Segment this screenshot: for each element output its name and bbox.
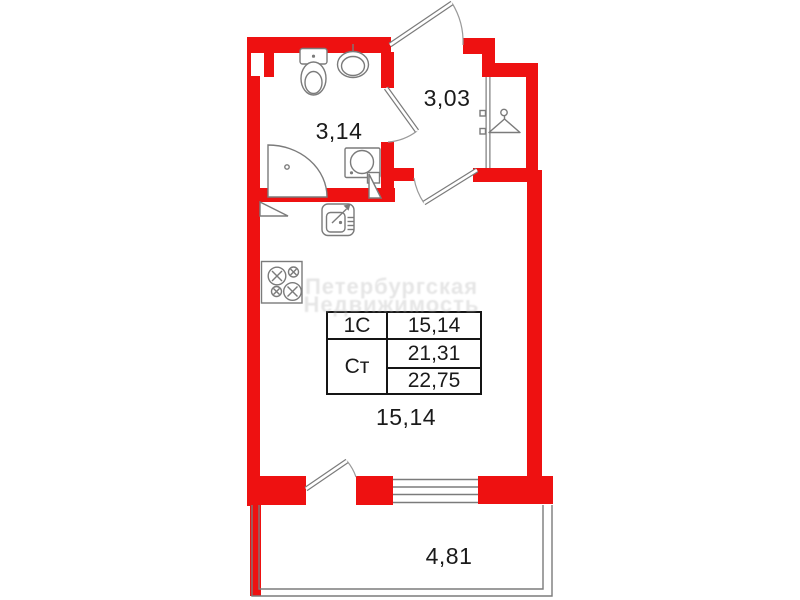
apartment-type-st-cell: Ст xyxy=(327,339,387,394)
living-room-door xyxy=(414,170,477,203)
wardrobe-knob-top xyxy=(480,111,486,117)
area-total-value-cell: 22,75 xyxy=(387,368,481,394)
apartment-type-1c-cell: 1С xyxy=(327,312,387,339)
wardrobe xyxy=(480,77,520,168)
entrance-door xyxy=(390,3,463,45)
area-table: 1С 15,14 Ст 21,31 22,75 xyxy=(326,311,482,395)
hallway-area-label: 3,03 xyxy=(415,85,479,112)
wall-bathroom-right-top xyxy=(381,52,394,88)
bathroom-area-label: 3,14 xyxy=(307,118,371,145)
wall-niche-cutout xyxy=(251,53,264,76)
toilet-icon xyxy=(300,49,327,96)
wall-left xyxy=(247,37,260,506)
balcony-outline xyxy=(252,505,552,596)
wall-niche-pier xyxy=(264,37,274,77)
floorplan-drawing xyxy=(0,0,800,600)
table-row: 1С 15,14 xyxy=(327,312,481,339)
hanger-icon xyxy=(489,109,520,132)
wall-hall-bottom-right xyxy=(473,168,538,182)
wall-window-right-block xyxy=(478,476,553,504)
stove-icon xyxy=(262,262,303,304)
balcony-inner-line xyxy=(259,505,543,589)
balcony-outer-line xyxy=(252,505,552,596)
area-living-value-cell: 21,31 xyxy=(387,339,481,368)
balcony-area-label: 4,81 xyxy=(417,543,481,570)
floorplan-canvas: 3,14 3,03 15,14 4,81 Петербургская Недви… xyxy=(0,0,800,600)
wall-right-lower xyxy=(527,170,542,476)
wardrobe-knob-bottom xyxy=(480,129,486,135)
balcony-door xyxy=(306,461,356,489)
wall-bottom-left-block xyxy=(247,476,306,505)
vent-triangle-kitchen xyxy=(260,202,288,216)
living-room-area-label: 15,14 xyxy=(367,404,445,431)
window xyxy=(393,480,478,503)
washbasin-round-icon xyxy=(345,148,380,183)
area-1c-value-cell: 15,14 xyxy=(387,312,481,339)
wall-balcony-door-jamb xyxy=(356,476,393,505)
wall-hall-bottom-left xyxy=(381,168,414,181)
table-row: Ст 21,31 xyxy=(327,339,481,368)
bathroom-door xyxy=(386,88,417,142)
wall-right-upper xyxy=(526,63,538,182)
shower-tray-icon xyxy=(268,145,327,197)
kitchen-sink-icon xyxy=(322,204,354,236)
